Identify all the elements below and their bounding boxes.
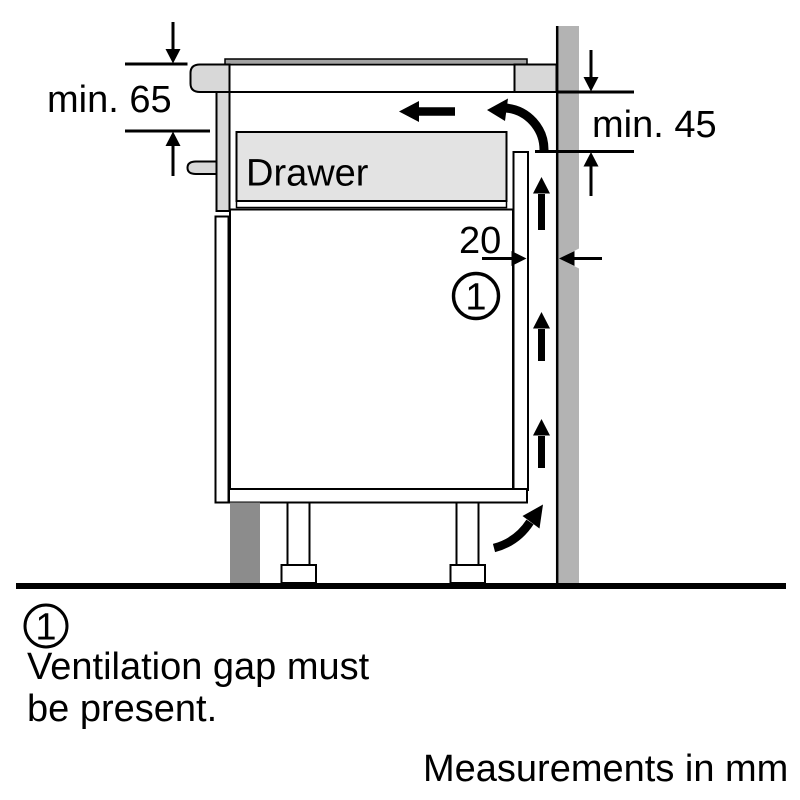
hob-housing-strip (217, 92, 230, 211)
drawer-label: Drawer (246, 153, 369, 195)
footnote-line2: be present. (27, 688, 217, 730)
footnote-line1: Ventilation gap must (27, 646, 370, 688)
cabinet-front-panel (216, 217, 229, 503)
cabinet-leg-rear-foot (451, 565, 486, 583)
airflow-arrow-up-icon (533, 312, 550, 329)
worktop-rear-section (515, 65, 557, 93)
wall (557, 26, 579, 583)
cabinet-leg-front-foot (282, 565, 317, 583)
airflow-curve-bottom (494, 522, 530, 548)
footnote: 1 Ventilation gap must be present. (25, 605, 370, 730)
dim-label-min-45: min. 45 (592, 104, 717, 146)
cabinet-back-panel (514, 152, 529, 490)
cabinet-leg-rear (457, 503, 479, 566)
airflow-curve-top (506, 108, 544, 150)
callout-number: 1 (465, 277, 486, 319)
cabinet-leg-front (288, 503, 310, 566)
drawer: Drawer (237, 132, 507, 201)
arrow-up-icon (166, 132, 181, 147)
callout-1: 1 (454, 274, 499, 319)
airflow-arrow-up-icon (533, 419, 550, 436)
airflow-arrow-up-icon (533, 177, 550, 194)
footnote-number: 1 (35, 607, 56, 649)
worktop-cutout (230, 65, 516, 93)
airflow-arrow-left-icon (399, 101, 419, 122)
arrow-down-icon (584, 77, 599, 92)
airflow-curve-top-head-icon (487, 99, 508, 122)
cabinet-bottom-shelf (229, 489, 527, 503)
wall-section (559, 26, 580, 583)
arrow-down-icon (166, 49, 181, 64)
hob-glass-top (225, 59, 527, 65)
installation-diagram-page: Drawer min. 65 min. 45 20 1 (0, 0, 800, 800)
hob-fixing-pin (188, 162, 217, 175)
dimension-gap-20: 20 (459, 220, 602, 269)
hob-installation-diagram: Drawer min. 65 min. 45 20 1 (0, 0, 800, 800)
worktop-front-section (191, 65, 230, 93)
units-note: Measurements in mm (423, 748, 788, 790)
plinth-panel (230, 503, 260, 584)
arrow-up-icon (584, 152, 599, 167)
dimension-min-65: min. 65 (47, 22, 210, 176)
dim-label-min-65: min. 65 (47, 79, 172, 121)
dim-label-20: 20 (459, 220, 501, 262)
